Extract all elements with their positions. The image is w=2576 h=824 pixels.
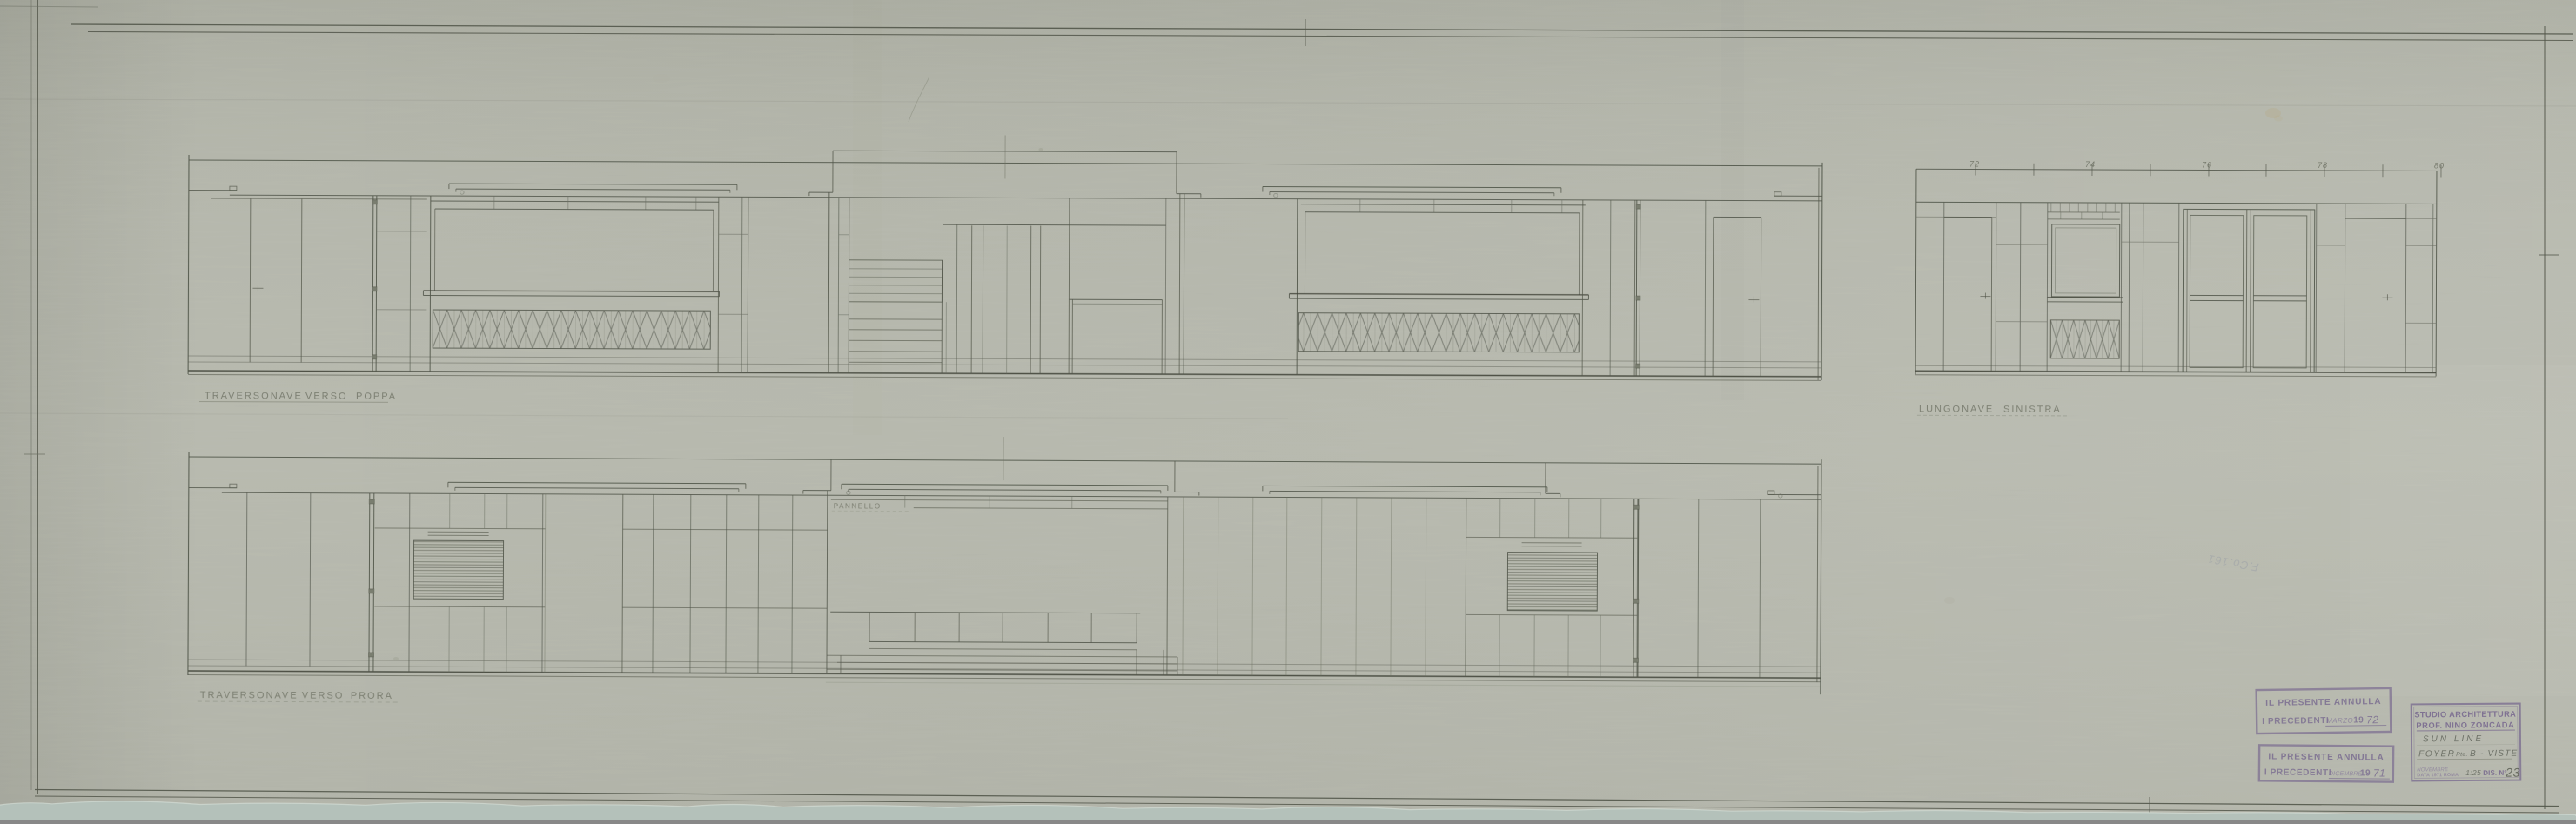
svg-text:STUDIO ARCHITETTURA: STUDIO ARCHITETTURA	[2414, 710, 2516, 720]
svg-text:DIS. N°: DIS. N°	[2483, 769, 2507, 777]
svg-text:VERSO: VERSO	[305, 391, 348, 401]
svg-text:19: 19	[2353, 715, 2364, 725]
svg-text:PRORA: PRORA	[351, 691, 393, 701]
svg-text:PROF. NINO ZONCADA: PROF. NINO ZONCADA	[2416, 720, 2514, 730]
svg-text:IL PRESENTE ANNULLA: IL PRESENTE ANNULLA	[2265, 697, 2381, 708]
svg-text:TRAVERSONAVE: TRAVERSONAVE	[205, 391, 303, 401]
svg-text:I PRECEDENTI: I PRECEDENTI	[2262, 716, 2329, 727]
svg-text:POPPA: POPPA	[356, 392, 397, 402]
svg-text:SINISTRA: SINISTRA	[2003, 405, 2062, 415]
svg-text:LUNGONAVE: LUNGONAVE	[1919, 404, 1994, 414]
svg-text:SUN LINE: SUN LINE	[2423, 734, 2484, 744]
svg-text:Pte.: Pte.	[2456, 752, 2468, 758]
svg-text:78: 78	[2318, 161, 2328, 170]
svg-text:80: 80	[2434, 161, 2445, 170]
svg-text:DATA 1971 ROMA: DATA 1971 ROMA	[2417, 773, 2459, 778]
svg-text:MARZO: MARZO	[2326, 717, 2353, 725]
svg-text:IL PRESENTE ANNULLA: IL PRESENTE ANNULLA	[2268, 752, 2384, 762]
svg-text:DICEMBRE: DICEMBRE	[2329, 771, 2363, 777]
svg-text:1:25: 1:25	[2465, 768, 2481, 777]
svg-text:71: 71	[2373, 767, 2385, 779]
svg-text:FOYER: FOYER	[2418, 749, 2456, 759]
svg-text:B - VISTE: B - VISTE	[2470, 749, 2518, 759]
svg-text:VERSO: VERSO	[302, 691, 345, 701]
svg-text:19: 19	[2360, 768, 2371, 778]
svg-text:PANNELLO: PANNELLO	[834, 502, 882, 510]
svg-text:74: 74	[2085, 160, 2096, 169]
svg-text:23: 23	[2505, 766, 2520, 780]
svg-text:TRAVERSONAVE: TRAVERSONAVE	[200, 690, 299, 700]
svg-text:76: 76	[2202, 160, 2212, 169]
svg-text:72: 72	[1969, 159, 1980, 168]
svg-text:I PRECEDENTI: I PRECEDENTI	[2264, 767, 2331, 778]
svg-text:72: 72	[2366, 713, 2379, 726]
